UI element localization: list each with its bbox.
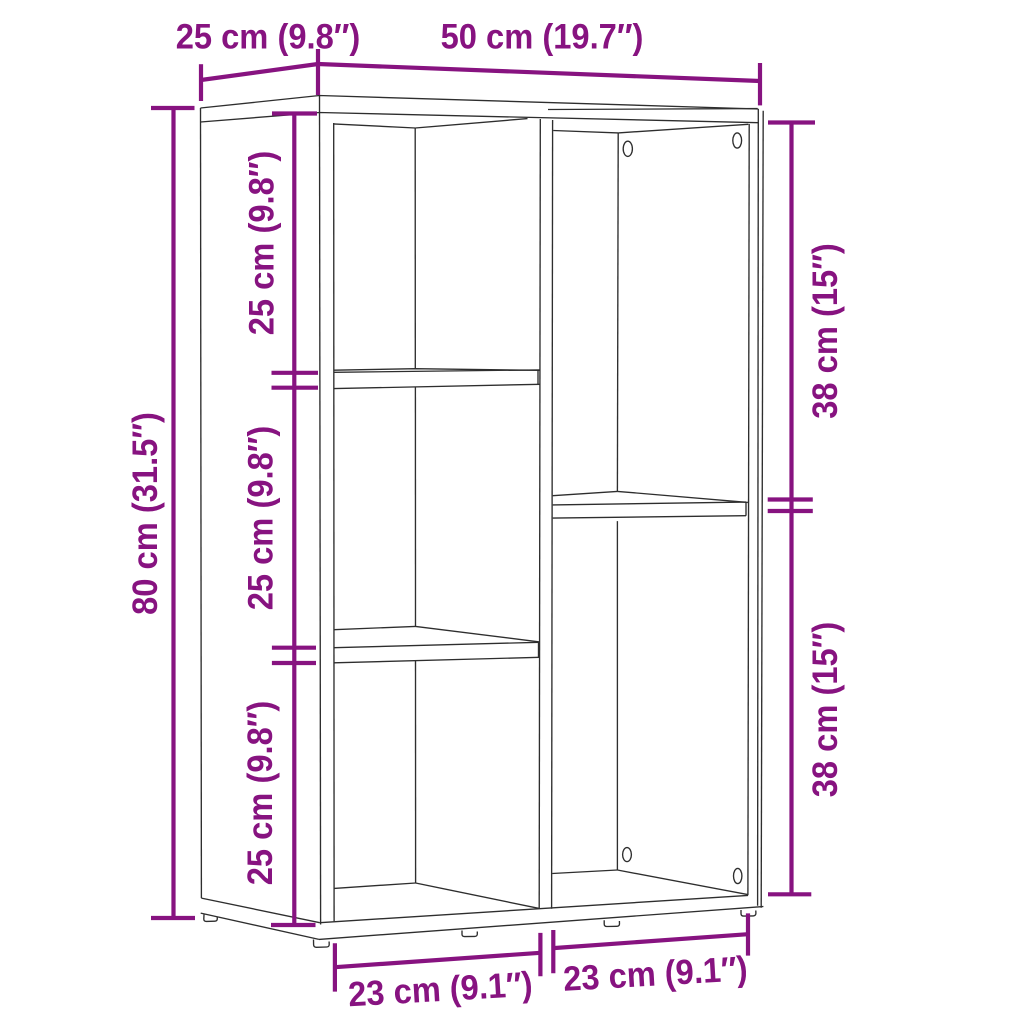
svg-text:50 cm (19.7″): 50 cm (19.7″) [441,17,644,56]
svg-text:38 cm (15″): 38 cm (15″) [806,622,845,798]
svg-text:25 cm (9.8″): 25 cm (9.8″) [241,701,280,886]
svg-text:38 cm (15″): 38 cm (15″) [806,243,845,419]
svg-text:25 cm (9.8″): 25 cm (9.8″) [176,17,361,56]
svg-text:80 cm (31.5″): 80 cm (31.5″) [126,412,165,615]
svg-text:25 cm (9.8″): 25 cm (9.8″) [241,426,280,611]
svg-text:25 cm (9.8″): 25 cm (9.8″) [242,151,281,336]
